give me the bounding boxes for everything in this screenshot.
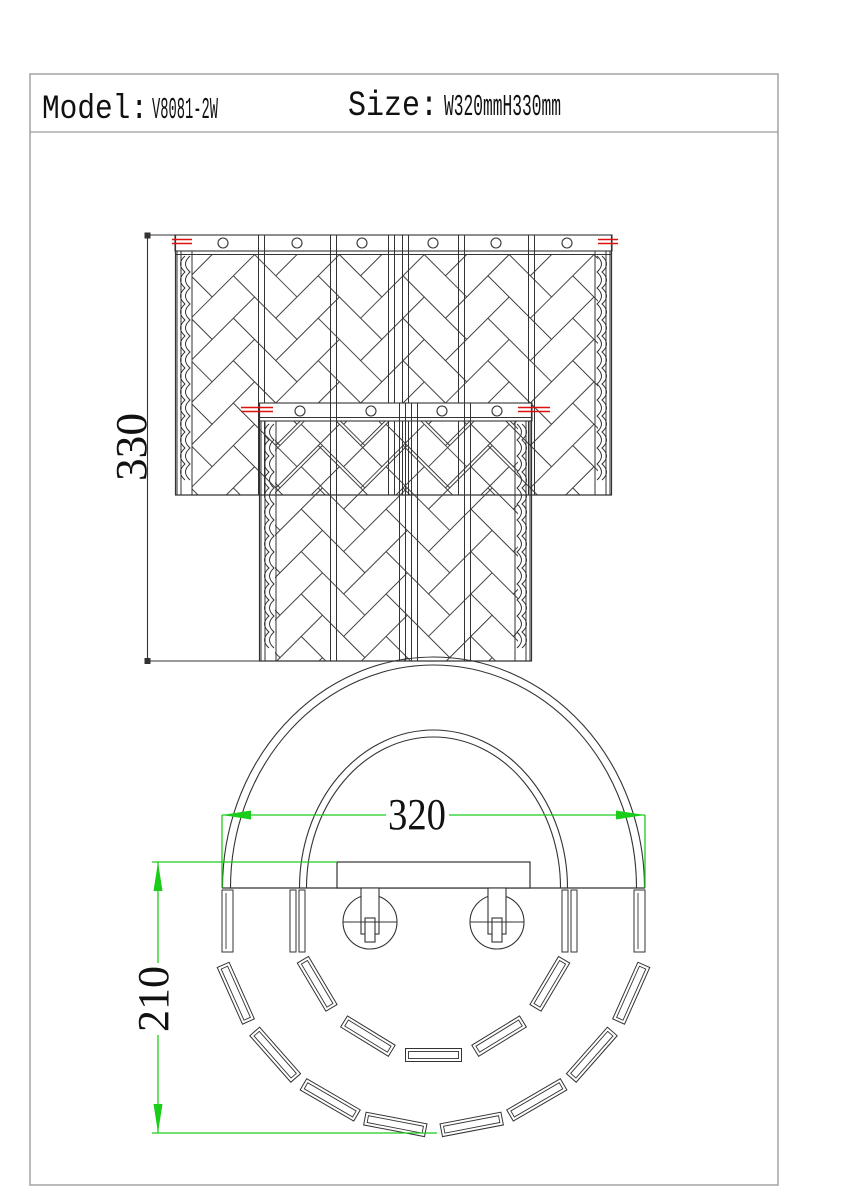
arc-crystal — [250, 1027, 301, 1082]
mounting-bracket — [337, 862, 530, 888]
drawing-sheet: Model: V8081-2W Size: W320mmH330mm 330 — [0, 0, 848, 1200]
arrow-left-icon — [222, 811, 251, 820]
crystal-rect — [341, 1016, 396, 1056]
dim-text-320: 320 — [388, 790, 446, 839]
arrow-right-icon — [616, 811, 645, 820]
outer-arc-frame-inner — [231, 665, 637, 888]
lamp-socket — [343, 888, 397, 949]
arc-crystal — [613, 962, 650, 1024]
end-crystal-slim — [299, 890, 305, 952]
end-crystal-slim — [290, 890, 296, 952]
crystal-rect — [507, 1079, 567, 1121]
arrow-up-icon — [154, 862, 163, 891]
arc-crystal — [530, 956, 570, 1011]
crystal-rect — [566, 1027, 617, 1082]
arc-crystal — [406, 1049, 462, 1062]
size-label: Size: — [348, 86, 438, 126]
crystal-rect — [222, 890, 233, 952]
arc-crystal — [472, 1016, 527, 1056]
end-crystal-slim — [562, 890, 568, 952]
lamp-front-elevation — [172, 235, 618, 661]
lower-tier — [241, 403, 550, 661]
lower-crystal-panel — [275, 421, 518, 661]
arc-crystal — [217, 962, 254, 1024]
crystal-rect — [406, 1049, 462, 1062]
crystal-rect — [250, 1027, 301, 1082]
crystal-rect — [440, 1112, 503, 1136]
crystal-rect — [530, 956, 570, 1011]
model-label: Model: — [42, 91, 148, 129]
crystal-rect — [297, 956, 337, 1011]
end-crystal-slim — [571, 890, 577, 952]
front-view: 330 — [107, 233, 618, 665]
end-crystal — [634, 890, 645, 952]
arc-crystal — [300, 1079, 360, 1121]
scallop-edge — [186, 256, 191, 480]
lamp-bottom-projection — [217, 657, 649, 1137]
end-crystal — [222, 890, 233, 952]
bottom-view: 320 210 — [129, 657, 650, 1137]
crystal-rect — [634, 890, 645, 952]
arrow-down-icon — [154, 1104, 163, 1133]
outer-arc-frame — [223, 657, 645, 888]
arc-crystal — [341, 1016, 396, 1056]
arc-crystal — [297, 956, 337, 1011]
crystal-rect — [217, 962, 254, 1024]
crystal-rect — [613, 962, 650, 1024]
arc-crystal — [507, 1079, 567, 1121]
dim-text-210: 210 — [129, 966, 178, 1032]
arc-crystal — [440, 1112, 503, 1136]
title-block: Model: V8081-2W Size: W320mmH330mm — [42, 86, 561, 129]
crystal-rect — [472, 1016, 527, 1056]
crystal-rect — [300, 1079, 360, 1121]
size-value: W320mmH330mm — [444, 90, 561, 125]
lamp-socket — [470, 888, 524, 949]
dim-text-330: 330 — [107, 413, 156, 481]
upper-mounting-band — [175, 235, 612, 251]
technical-drawing: Model: V8081-2W Size: W320mmH330mm 330 — [0, 0, 848, 1200]
model-value: V8081-2W — [152, 93, 218, 128]
bottom-depth-dimension: 210 — [129, 862, 437, 1133]
arc-crystal — [566, 1027, 617, 1082]
